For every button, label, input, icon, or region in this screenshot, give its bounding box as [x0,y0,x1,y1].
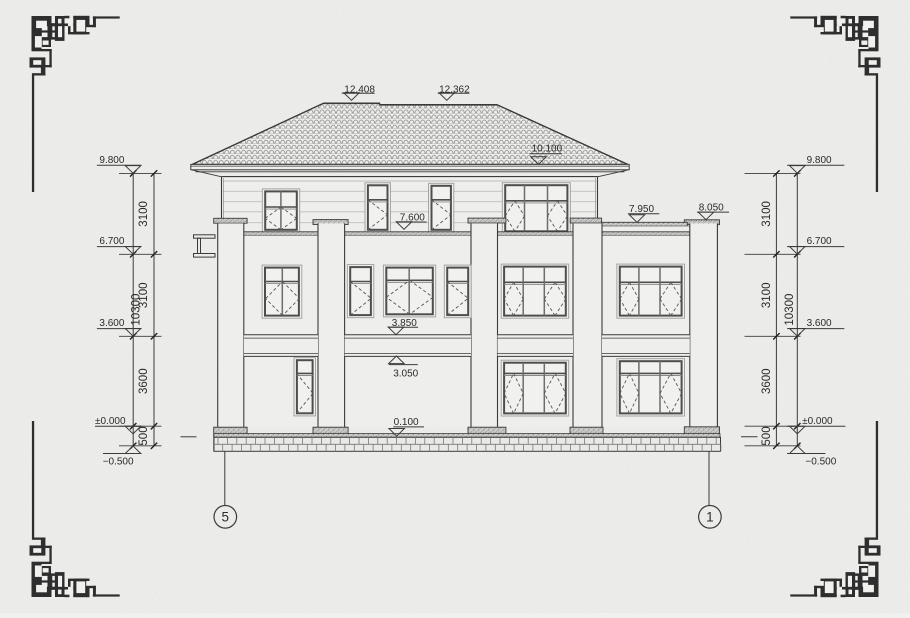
svg-text:10300: 10300 [130,294,142,326]
svg-text:3.050: 3.050 [393,368,418,379]
svg-text:500: 500 [761,426,773,445]
svg-text:3600: 3600 [761,368,773,394]
svg-text:3.600: 3.600 [99,318,124,329]
svg-text:−0.500: −0.500 [805,457,836,468]
svg-text:9.800: 9.800 [99,155,124,166]
svg-text:3.600: 3.600 [807,318,832,329]
svg-text:12.362: 12.362 [439,85,470,96]
svg-text:1: 1 [706,510,714,525]
svg-text:3100: 3100 [761,201,773,227]
svg-text:3100: 3100 [761,283,773,309]
svg-text:6.700: 6.700 [99,236,124,247]
svg-text:0.100: 0.100 [394,417,419,428]
svg-text:3100: 3100 [138,201,150,227]
svg-text:±0.000: ±0.000 [802,416,833,427]
svg-text:10.100: 10.100 [532,144,563,155]
svg-text:6.700: 6.700 [807,236,832,247]
svg-text:12.408: 12.408 [344,85,375,96]
svg-text:±0.000: ±0.000 [95,416,126,427]
svg-text:5: 5 [222,510,230,525]
svg-text:3600: 3600 [138,368,150,394]
svg-text:9.800: 9.800 [807,155,832,166]
svg-text:500: 500 [138,426,150,445]
svg-text:−0.500: −0.500 [103,457,134,468]
svg-text:10300: 10300 [784,294,796,326]
